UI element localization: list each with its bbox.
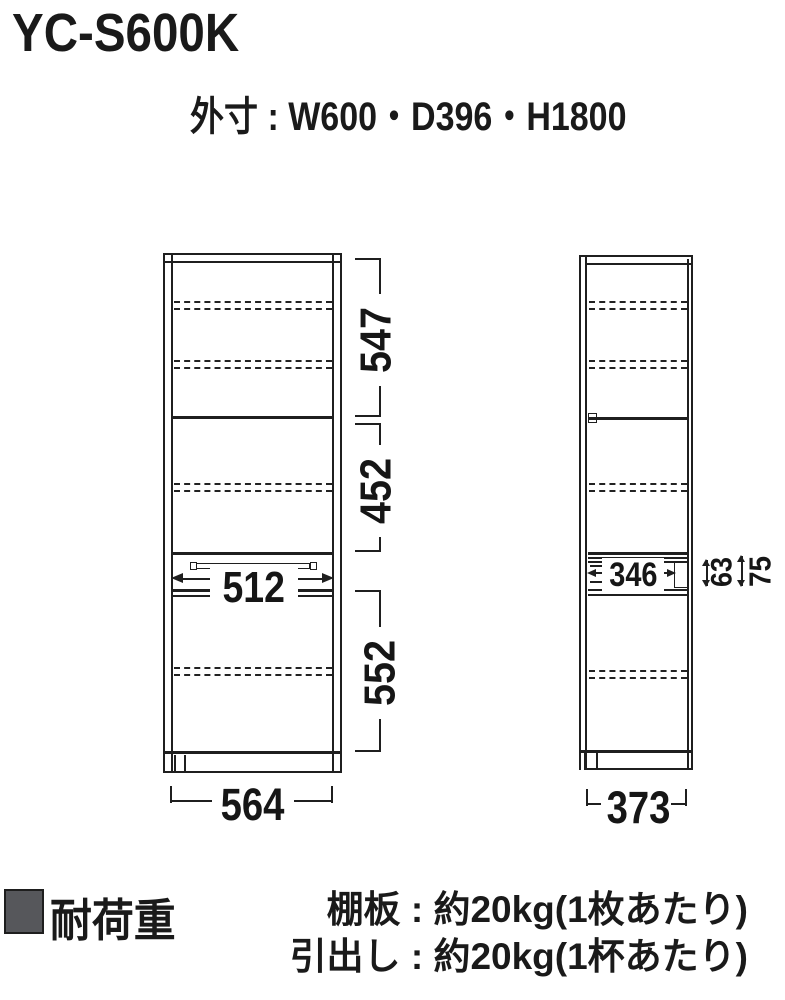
- base-bottom-line: [585, 768, 693, 770]
- toe-kick-line: [584, 753, 586, 770]
- fixed-shelf-line: [588, 417, 688, 420]
- adjustable-shelf-dashed-line: [589, 301, 687, 310]
- legend-square-icon: [4, 889, 44, 934]
- outer-dimensions-label: 外寸 : W600・D396・H1800: [190, 84, 627, 142]
- back-panel-line: [579, 255, 581, 770]
- back-panel-line: [585, 255, 587, 770]
- bottom-board-line: [165, 751, 340, 754]
- adjustable-shelf-dashed-line: [174, 301, 332, 310]
- toe-kick-line: [184, 755, 186, 771]
- side-panel-inner-line: [171, 255, 173, 771]
- dimension-tick: [355, 415, 381, 417]
- dimension-line: [170, 800, 216, 802]
- adjustable-shelf-dashed-line: [589, 360, 687, 369]
- load-capacity-heading: 耐荷重: [50, 884, 176, 949]
- toe-kick-line: [174, 755, 176, 771]
- side-panel-inner-line: [332, 255, 334, 771]
- top-edge-line: [579, 255, 693, 257]
- arrow-right-icon: [667, 569, 676, 577]
- top-section-height-dimension: 547: [353, 294, 401, 386]
- drawer-depth-dimension: 346: [602, 558, 664, 592]
- overall-depth-dimension: 373: [601, 785, 671, 830]
- load-capacity-notes: 棚板 : 約20kg(1枚あたり) 引出し : 約20kg(1杯あたり): [280, 886, 748, 980]
- adjustable-shelf-dashed-line: [589, 670, 687, 679]
- page-title: YC-S600K: [12, 2, 239, 64]
- adjustable-shelf-dashed-line: [174, 483, 332, 492]
- drawer-top-divider-line: [172, 552, 333, 555]
- shelf-load-note: 棚板 : 約20kg(1枚あたり): [280, 886, 748, 933]
- dimension-tick: [355, 258, 381, 260]
- arrow-left-icon: [171, 573, 183, 583]
- top-board-line: [586, 263, 692, 265]
- overall-width-dimension: 564: [212, 782, 294, 827]
- dimension-drawing: YC-S600K 外寸 : W600・D396・H1800 512: [0, 0, 785, 1000]
- middle-section-height-dimension: 452: [353, 445, 401, 537]
- arrow-left-icon: [587, 569, 596, 577]
- drawer-front-height-dimension: 63: [708, 546, 738, 598]
- drawer-handle-end-cap: [310, 562, 317, 570]
- drawer-handle-end-cap: [190, 562, 197, 570]
- front-edge-line: [691, 255, 693, 770]
- drawer-top-divider-line: [588, 552, 688, 555]
- bottom-section-height-dimension: 552: [357, 627, 405, 719]
- cabinet-outline: [163, 253, 342, 773]
- dimension-line: [290, 800, 333, 802]
- drawer-rail-line: [588, 594, 688, 596]
- adjustable-shelf-dashed-line: [174, 360, 332, 369]
- dimension-tick: [355, 550, 381, 552]
- dimension-tick: [355, 750, 381, 752]
- top-board-line: [165, 261, 340, 263]
- adjustable-shelf-dashed-line: [174, 667, 332, 676]
- dimension-tick: [355, 423, 381, 425]
- front-edge-inner-line: [687, 259, 689, 768]
- dimension-tick: [355, 590, 381, 592]
- drawer-load-note: 引出し : 約20kg(1杯あたり): [280, 933, 748, 980]
- toe-kick-line: [596, 753, 598, 770]
- drawer-section-height-dimension: 75: [744, 542, 776, 600]
- drawer-front-board: [674, 562, 688, 588]
- fixed-shelf-line: [172, 416, 333, 419]
- shelf-edge-notch: [588, 413, 597, 423]
- adjustable-shelf-dashed-line: [589, 483, 687, 492]
- drawer-width-dimension: 512: [210, 566, 298, 610]
- arrow-right-icon: [322, 573, 334, 583]
